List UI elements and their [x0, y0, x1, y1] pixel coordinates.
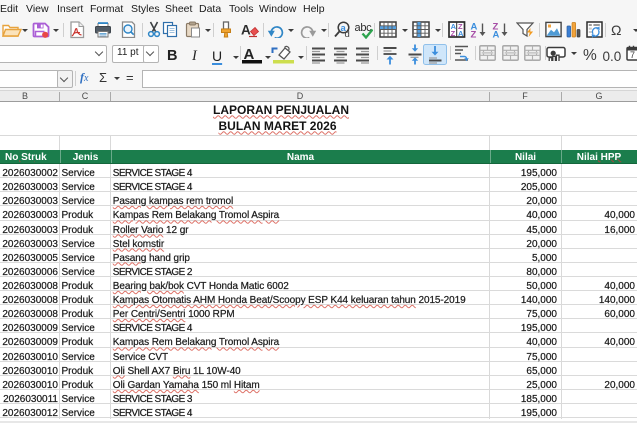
- svg-text:7: 7: [630, 50, 635, 60]
